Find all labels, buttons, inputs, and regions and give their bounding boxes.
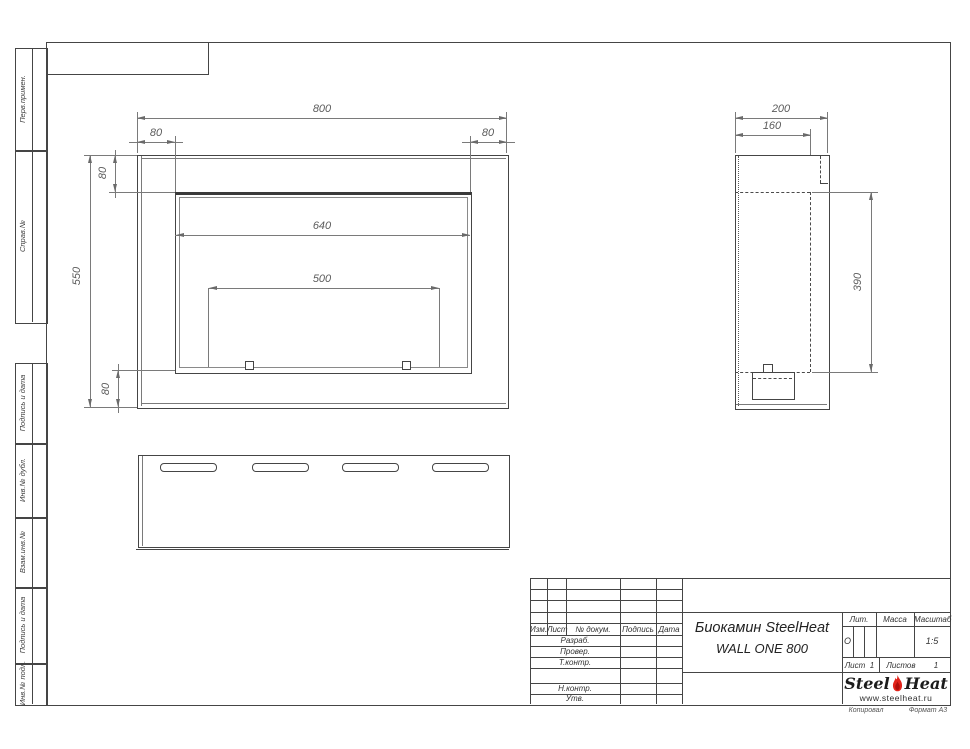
dim-arrow bbox=[113, 184, 117, 192]
side-hidden-line bbox=[738, 156, 739, 406]
tb-scale-value: 1:5 bbox=[914, 636, 950, 647]
doc-title-line1: Биокамин SteelHeat bbox=[684, 619, 840, 637]
side-notch-line bbox=[820, 183, 828, 184]
ext-line bbox=[109, 192, 175, 193]
side-hidden-line bbox=[735, 192, 810, 193]
margin-label-vzam-inv: Взам.инв.№ bbox=[18, 519, 28, 585]
tb-lit-value: О bbox=[842, 636, 853, 647]
dim-front-inset-left: 80 bbox=[141, 127, 171, 139]
tb-header-date: Дата bbox=[656, 624, 682, 635]
ext-line bbox=[84, 155, 137, 156]
ext-line bbox=[812, 372, 878, 373]
logo-url: www.steelheat.ru bbox=[842, 693, 950, 703]
side-hidden-line bbox=[810, 192, 811, 372]
dim-arrow bbox=[88, 399, 92, 407]
dim-arrow bbox=[499, 116, 507, 120]
tb-line bbox=[530, 600, 682, 601]
tb-row-razrab: Разраб. bbox=[530, 635, 620, 646]
margin-label-sprav-no: Справ.№ bbox=[18, 152, 28, 320]
tb-mass-label: Масса bbox=[876, 614, 914, 625]
dim-arrow bbox=[820, 116, 828, 120]
tb-line bbox=[842, 657, 950, 658]
tb-line bbox=[530, 589, 682, 590]
tb-line bbox=[879, 657, 880, 672]
ext-line bbox=[208, 288, 209, 367]
logo-cell: Steel Heat www.steelheat.ru bbox=[842, 672, 950, 704]
steelheat-logo: Steel Heat bbox=[842, 673, 950, 693]
dim-front-inset-top: 80 bbox=[97, 158, 109, 188]
margin-label-inv-podl: Инв.№ подл. bbox=[18, 648, 28, 718]
flame-icon bbox=[891, 675, 904, 692]
tb-line bbox=[620, 578, 621, 704]
dim-arrow bbox=[803, 133, 811, 137]
dim-arrow bbox=[209, 286, 217, 290]
dim-line-160 bbox=[735, 135, 811, 136]
top-left-stamp-box bbox=[46, 42, 209, 75]
dim-arrow bbox=[137, 116, 145, 120]
dim-front-opening-width: 640 bbox=[302, 220, 342, 232]
tb-sheets-label: Листов bbox=[882, 660, 920, 671]
dim-arrow bbox=[116, 399, 120, 407]
dim-front-total-height: 550 bbox=[71, 256, 83, 296]
vent-slot-1 bbox=[160, 463, 217, 472]
bottom-lip-line bbox=[136, 549, 509, 550]
side-edge-line bbox=[736, 404, 827, 405]
ext-line bbox=[175, 136, 176, 192]
bottom-edge-line bbox=[142, 456, 143, 546]
side-burner-box bbox=[752, 372, 795, 400]
margin-divider bbox=[32, 663, 33, 704]
margin-divider bbox=[32, 443, 33, 517]
ext-line bbox=[439, 288, 440, 367]
dim-line-200 bbox=[735, 118, 828, 119]
margin-divider bbox=[32, 363, 33, 443]
dim-arrow bbox=[499, 140, 507, 144]
tb-lit-label: Лит. bbox=[842, 614, 876, 625]
tb-row-tkontr: Т.контр. bbox=[530, 657, 620, 668]
margin-divider bbox=[32, 150, 33, 322]
tb-line bbox=[682, 578, 683, 704]
dim-front-inset-right: 80 bbox=[473, 127, 503, 139]
ext-line bbox=[84, 407, 137, 408]
tb-header-sign: Подпись bbox=[620, 624, 656, 635]
dim-line-500 bbox=[208, 288, 439, 289]
dim-side-inner-depth: 160 bbox=[752, 120, 792, 132]
dim-front-burner-width: 500 bbox=[302, 273, 342, 285]
tb-line bbox=[842, 626, 950, 627]
dim-arrow bbox=[88, 155, 92, 163]
dim-front-inset-bottom: 80 bbox=[100, 374, 112, 404]
margin-label-inv-dubl: Инв.№ дубл. bbox=[18, 445, 28, 515]
tb-line bbox=[864, 626, 865, 657]
drawing-sheet: Перв.примен. Справ.№ Подпись и дата Инв.… bbox=[0, 0, 970, 749]
dim-arrow bbox=[735, 133, 743, 137]
tb-line bbox=[530, 668, 682, 669]
margin-label-perv-primen: Перв.примен. bbox=[18, 49, 28, 149]
dim-arrow bbox=[113, 155, 117, 163]
dim-arrow bbox=[116, 370, 120, 378]
footer-copy-label: Копировал bbox=[830, 707, 902, 714]
dim-side-opening-height: 390 bbox=[852, 262, 864, 302]
dim-arrow bbox=[869, 192, 873, 200]
tb-header-list: Лист bbox=[547, 624, 567, 635]
front-view-edge-line bbox=[141, 156, 142, 406]
tb-line bbox=[530, 612, 950, 613]
ext-line bbox=[112, 370, 175, 371]
ext-line bbox=[470, 136, 471, 192]
dim-arrow bbox=[470, 140, 478, 144]
side-notch-line bbox=[820, 156, 821, 183]
tb-row-prover: Провер. bbox=[530, 646, 620, 657]
tb-line bbox=[853, 626, 854, 657]
tb-line bbox=[530, 578, 950, 579]
margin-divider bbox=[32, 517, 33, 587]
tb-row-utv: Утв. bbox=[530, 693, 620, 704]
margin-label-podpis-data-1: Подпись и дата bbox=[18, 365, 28, 441]
margin-divider bbox=[32, 48, 33, 150]
tb-header-doc: № докум. bbox=[566, 624, 620, 635]
vent-slot-4 bbox=[432, 463, 489, 472]
logo-steel-text: Steel bbox=[844, 674, 889, 693]
dim-arrow bbox=[167, 140, 175, 144]
side-burner-line bbox=[753, 378, 792, 379]
vent-slot-2 bbox=[252, 463, 309, 472]
dim-arrow bbox=[137, 140, 145, 144]
dim-arrow bbox=[462, 233, 470, 237]
front-view-edge-line bbox=[141, 403, 506, 404]
logo-heat-text: Heat bbox=[905, 674, 948, 693]
dim-arrow bbox=[869, 364, 873, 372]
tb-scale-label: Масштаб bbox=[914, 614, 950, 625]
tb-sheet-value: 1 bbox=[866, 660, 878, 671]
dim-arrow bbox=[431, 286, 439, 290]
dim-line-390 bbox=[871, 192, 872, 372]
dim-arrow bbox=[176, 233, 184, 237]
dim-line-640 bbox=[175, 235, 470, 236]
tb-header-izm: Изм. bbox=[529, 624, 548, 635]
dim-line-550 bbox=[90, 155, 91, 407]
margin-divider bbox=[32, 587, 33, 663]
dim-arrow bbox=[735, 116, 743, 120]
dim-line-800 bbox=[137, 118, 507, 119]
tb-sheets-value: 1 bbox=[928, 660, 944, 671]
dim-front-total-width: 800 bbox=[302, 103, 342, 115]
front-view-edge-line bbox=[141, 158, 506, 159]
footer-format-label: Формат А3 bbox=[903, 707, 953, 714]
dim-side-depth: 200 bbox=[761, 103, 801, 115]
burner-tab-right bbox=[402, 361, 411, 370]
vent-slot-3 bbox=[342, 463, 399, 472]
tb-line bbox=[656, 578, 657, 704]
burner-tab-left bbox=[245, 361, 254, 370]
tb-sheet-label: Лист bbox=[843, 660, 867, 671]
doc-title-line2: WALL ONE 800 bbox=[684, 641, 840, 657]
